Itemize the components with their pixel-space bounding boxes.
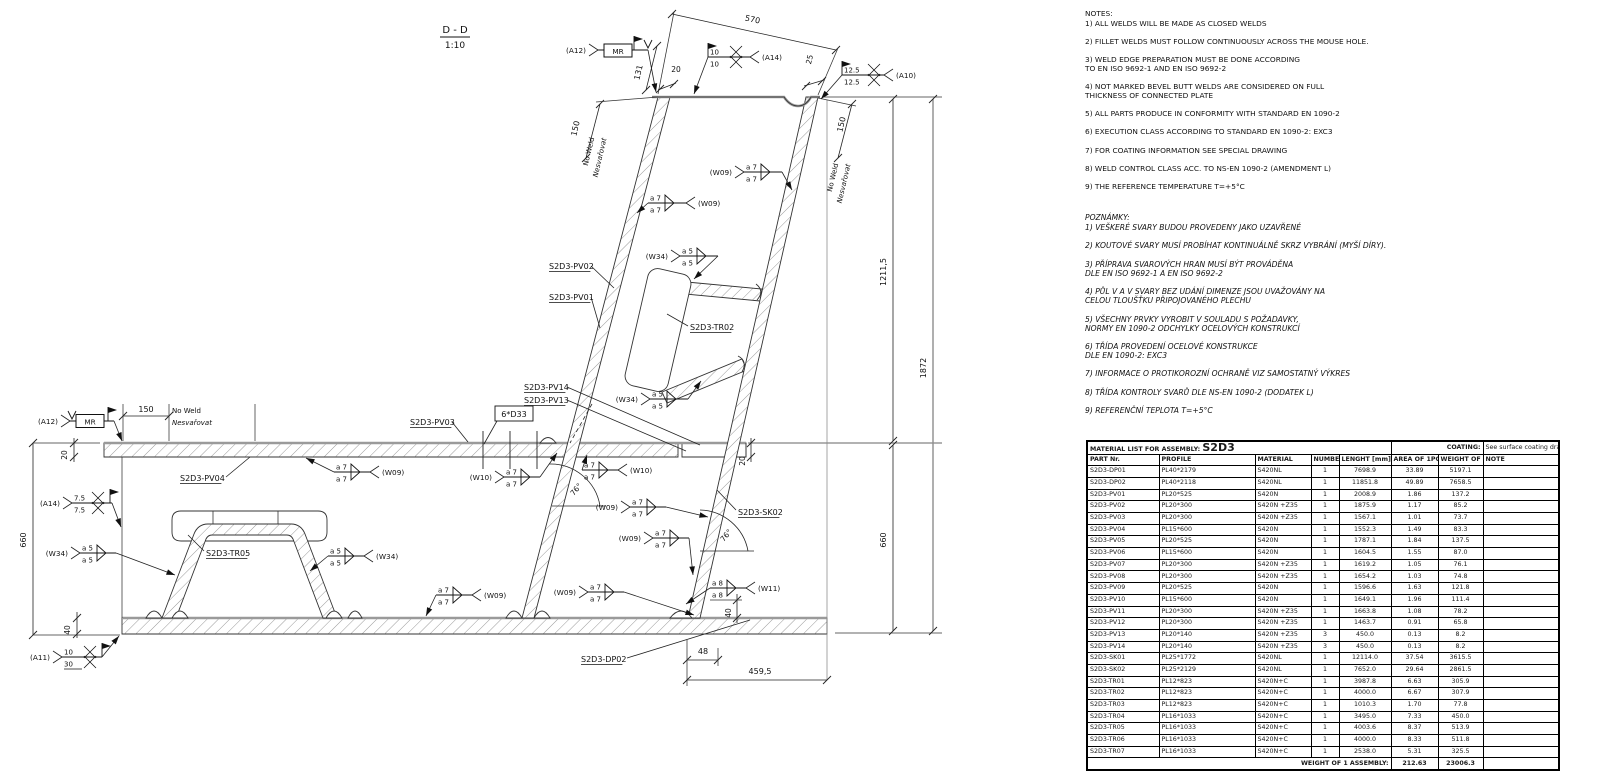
tr02-leg-lower-hatch [662, 359, 747, 403]
dim-tick [670, 80, 678, 88]
bottom-plate-dp02-hatch [122, 618, 827, 634]
weld-w34b-size-top: a 5 [652, 391, 663, 399]
weld-w09f-size-top: a 7 [438, 587, 449, 595]
cell-S2D3-PV12-6: 65.8 [1438, 618, 1483, 630]
cell-S2D3-DP01-5: 33.89 [1391, 466, 1438, 478]
dim-tick [848, 100, 856, 108]
no-weld-text-mid: No Weld [172, 407, 201, 415]
table-row-S2D3-PV04: S2D3-PV04PL15*600S420N11552.31.4983.3 [1087, 524, 1559, 536]
weld-a10-fork [884, 75, 893, 81]
weld-w34R-fork [364, 550, 373, 556]
cell-S2D3-PV07-5: 1.05 [1391, 559, 1438, 571]
cell-S2D3-SK01-2: S420NL [1255, 653, 1311, 665]
weld-w09b-size-bottom: a 7 [650, 206, 661, 214]
weld-mound-3 [146, 611, 162, 618]
cell-S2D3-PV08-6: 74.8 [1438, 571, 1483, 583]
cell-S2D3-PV07-4: 1619.2 [1339, 559, 1391, 571]
cell-S2D3-PV02-4: 1875.9 [1339, 501, 1391, 513]
mid-plate-hatch [104, 443, 678, 457]
weld-w34a-fillet-bottom-icon [697, 256, 706, 264]
table-row-S2D3-PV06: S2D3-PV06PL15*600S420N11604.51.5587.0 [1087, 548, 1559, 560]
table-row-S2D3-PV13: S2D3-PV13PL20*140S420N +Z353450.00.138.2 [1087, 629, 1559, 641]
weld-w34L-size-bottom: a 5 [82, 556, 93, 564]
cell-S2D3-PV10-4: 1649.1 [1339, 594, 1391, 606]
cell-S2D3-PV06-2: S420N [1255, 548, 1311, 560]
cell-S2D3-PV02-6: 85.2 [1438, 501, 1483, 513]
dim-d660l: 660 [19, 532, 28, 547]
weld-w09d-size-top: a 7 [632, 499, 643, 507]
weld-w10a-fillet-bottom-icon [521, 477, 530, 485]
cell-S2D3-PV02-5: 1.17 [1391, 501, 1438, 513]
cell-S2D3-PV07-6: 76.1 [1438, 559, 1483, 571]
dim-tick [818, 77, 826, 85]
weld-w11-fillet-bottom-icon [727, 588, 736, 596]
part-label-sk02: S2D3-SK02 [738, 508, 783, 517]
cell-S2D3-PV10-7 [1483, 594, 1559, 606]
note-cz-item-8: 8) TŘÍDA KONTROLY SVARŮ DLE NS-EN 1090-2… [1085, 389, 1565, 398]
note-cz-item-4: 4) PŮL V A V SVARY BEZ UDÁNÍ DIMENZE JSO… [1085, 288, 1565, 306]
weld-a12t-box-text: MR [612, 47, 623, 56]
weld-w34L-fork [71, 547, 80, 553]
weld-a11-fork [53, 657, 62, 663]
cell-S2D3-PV13-6: 8.2 [1438, 629, 1483, 641]
cell-S2D3-PV07-2: S420N +Z35 [1255, 559, 1311, 571]
cell-S2D3-TR07-3: 1 [1311, 746, 1339, 758]
weld-a14t-size-top: 10 [710, 49, 719, 57]
cell-S2D3-TR01-3: 1 [1311, 676, 1339, 688]
weld-a12L-v-icon [68, 411, 76, 419]
cell-S2D3-TR05-4: 4003.6 [1339, 723, 1391, 735]
table-row-S2D3-TR07: S2D3-TR07PL16*1033S420N+C12538.05.31325.… [1087, 746, 1559, 758]
cell-S2D3-PV08-2: S420N +Z35 [1255, 571, 1311, 583]
cell-S2D3-PV04-7 [1483, 524, 1559, 536]
weld-w10b-fillet-bottom-icon [599, 470, 608, 478]
cell-S2D3-DP01-3: 1 [1311, 466, 1339, 478]
weld-w09e-fork [644, 538, 653, 544]
weld-w11-size-top: a 8 [712, 580, 723, 588]
cell-S2D3-TR05-6: 513.9 [1438, 723, 1483, 735]
cell-S2D3-TR05-3: 1 [1311, 723, 1339, 735]
cell-S2D3-PV09-3: 1 [1311, 583, 1339, 595]
cell-S2D3-TR01-6: 305.9 [1438, 676, 1483, 688]
weld-w09a-fork [735, 172, 744, 178]
weld-w09g-size-bottom: a 7 [590, 595, 601, 603]
assembly-name: S2D3 [1202, 441, 1234, 454]
dim-tick [653, 42, 661, 50]
cell-S2D3-SK02-4: 7652.0 [1339, 664, 1391, 676]
line [596, 97, 658, 102]
weld-w34b-fork [641, 399, 650, 405]
weld-a12L-tag: (A12) [38, 417, 58, 426]
cell-S2D3-PV08-3: 1 [1311, 571, 1339, 583]
table-row-S2D3-PV14: S2D3-PV14PL20*140S420N +Z353450.00.138.2 [1087, 641, 1559, 653]
cell-S2D3-TR03-0: S2D3-TR03 [1087, 700, 1159, 712]
cell-S2D3-PV14-3: 3 [1311, 641, 1339, 653]
weld-w34L-fillet-bottom-icon [97, 553, 106, 561]
cell-S2D3-PV08-7 [1483, 571, 1559, 583]
weld-w11-size-bottom: a 8 [712, 591, 723, 599]
cell-S2D3-TR01-1: PL12*823 [1159, 676, 1255, 688]
cell-S2D3-SK02-1: PL25*2129 [1159, 664, 1255, 676]
note-en-heading: NOTES: [1085, 10, 1565, 19]
column-header-6: AREA OF 1PCS (m2) [1391, 454, 1438, 466]
cell-S2D3-SK02-6: 2861.5 [1438, 664, 1483, 676]
cell-S2D3-PV14-6: 8.2 [1438, 641, 1483, 653]
note-en-item-4: 4) NOT MARKED BEVEL BUTT WELDS ARE CONSI… [1085, 83, 1565, 100]
cell-S2D3-TR02-0: S2D3-TR02 [1087, 688, 1159, 700]
cell-S2D3-PV13-0: S2D3-PV13 [1087, 629, 1159, 641]
cell-S2D3-TR04-2: S420N+C [1255, 711, 1311, 723]
weld-w09e-arrowhead [689, 566, 695, 575]
cell-S2D3-PV11-1: PL20*300 [1159, 606, 1255, 618]
weld-w11-fork [746, 582, 755, 588]
cell-S2D3-TR06-6: 511.8 [1438, 735, 1483, 747]
cell-S2D3-PV13-2: S420N +Z35 [1255, 629, 1311, 641]
cell-S2D3-TR07-2: S420N+C [1255, 746, 1311, 758]
cell-S2D3-PV02-7 [1483, 501, 1559, 513]
note-en-item-6: 6) EXECUTION CLASS ACCORDING TO STANDARD… [1085, 128, 1565, 137]
table-row-S2D3-PV09: S2D3-PV09PL20*525S420N11596.61.63121.8 [1087, 583, 1559, 595]
column-header-5: LENGHT [mm] [1339, 454, 1391, 466]
cell-S2D3-PV10-2: S420N [1255, 594, 1311, 606]
footer-area-total: 212.63 [1391, 758, 1438, 770]
cell-S2D3-PV03-2: S420N +Z35 [1255, 513, 1311, 525]
cell-S2D3-PV04-3: 1 [1311, 524, 1339, 536]
cell-S2D3-PV04-6: 83.3 [1438, 524, 1483, 536]
weld-w09d-fork [621, 507, 630, 513]
cell-S2D3-PV11-7 [1483, 606, 1559, 618]
weld-a12t-tag: (A12) [566, 46, 586, 55]
cell-S2D3-TR02-7 [1483, 688, 1559, 700]
weld-w09f-size-bottom: a 7 [438, 598, 449, 606]
cell-S2D3-PV01-4: 2008.9 [1339, 489, 1391, 501]
note-en-item-5: 5) ALL PARTS PRODUCE IN CONFORMITY WITH … [1085, 110, 1565, 119]
cell-S2D3-PV13-1: PL20*140 [1159, 629, 1255, 641]
weld-w09a-fillet-top-icon [761, 164, 770, 172]
cell-S2D3-SK01-5: 37.54 [1391, 653, 1438, 665]
cell-S2D3-DP02-6: 7658.5 [1438, 477, 1483, 489]
part-label-tr05: S2D3-TR05 [206, 549, 250, 558]
cell-S2D3-PV03-3: 1 [1311, 513, 1339, 525]
weld-a11-tag: (A11) [30, 653, 50, 662]
cell-S2D3-TR03-4: 1010.3 [1339, 700, 1391, 712]
section-scale: 1:10 [445, 41, 465, 51]
weld-a12t-flag-icon [634, 36, 643, 42]
part-label-pv04: S2D3-PV04 [180, 474, 225, 483]
coating-label: COATING: [1391, 441, 1483, 454]
cell-S2D3-TR01-4: 3987.8 [1339, 676, 1391, 688]
cell-S2D3-PV06-1: PL15*600 [1159, 548, 1255, 560]
cell-S2D3-TR06-5: 8.33 [1391, 735, 1438, 747]
cell-S2D3-PV14-0: S2D3-PV14 [1087, 641, 1159, 653]
weld-w10b-fork [618, 470, 627, 476]
table-row-S2D3-DP02: S2D3-DP02PL40*2118S420NL111851.849.89765… [1087, 477, 1559, 489]
weld-w09b-fork [686, 197, 695, 203]
cell-S2D3-TR03-1: PL12*823 [1159, 700, 1255, 712]
cell-S2D3-PV06-0: S2D3-PV06 [1087, 548, 1159, 560]
table-row-S2D3-PV05: S2D3-PV05PL20*525S420N11787.11.84137.5 [1087, 536, 1559, 548]
weld-w34L-tag: (W34) [46, 549, 68, 558]
weld-w09b-size-top: a 7 [650, 195, 661, 203]
cell-S2D3-PV05-6: 137.5 [1438, 536, 1483, 548]
cell-S2D3-PV13-5: 0.13 [1391, 629, 1438, 641]
weld-a14L-arrowhead [115, 518, 121, 527]
weld-w34L-leader [116, 553, 175, 575]
cell-S2D3-TR04-0: S2D3-TR04 [1087, 711, 1159, 723]
note-en-item-1: 1) ALL WELDS WILL BE MADE AS CLOSED WELD… [1085, 20, 1565, 29]
weld-w34R-size-bottom: a 5 [330, 559, 341, 567]
weld-w34R-tag: (W34) [376, 552, 398, 561]
cell-S2D3-PV10-5: 1.96 [1391, 594, 1438, 606]
weld-w34b-tag: (W34) [616, 395, 638, 404]
cell-S2D3-TR07-5: 5.31 [1391, 746, 1438, 758]
cell-S2D3-PV05-7 [1483, 536, 1559, 548]
weld-w34R-fillet-top-icon [345, 548, 354, 556]
cell-S2D3-PV04-2: S420N [1255, 524, 1311, 536]
weld-w34L-size-top: a 5 [82, 545, 93, 553]
cell-S2D3-PV09-2: S420N [1255, 583, 1311, 595]
dim-d20r: 20 [738, 456, 747, 466]
cell-S2D3-PV14-7 [1483, 641, 1559, 653]
cell-S2D3-PV06-3: 1 [1311, 548, 1339, 560]
weld-w34b-size-bottom: a 5 [652, 402, 663, 410]
cell-S2D3-TR02-6: 307.9 [1438, 688, 1483, 700]
cell-S2D3-PV03-5: 1.01 [1391, 513, 1438, 525]
cell-S2D3-TR07-6: 325.5 [1438, 746, 1483, 758]
cell-S2D3-PV11-5: 1.08 [1391, 606, 1438, 618]
weld-a14t-fork [750, 57, 759, 63]
line [818, 98, 856, 106]
cell-S2D3-TR07-4: 2538.0 [1339, 746, 1391, 758]
cell-S2D3-PV02-1: PL20*300 [1159, 501, 1255, 513]
table-row-S2D3-TR05: S2D3-TR05PL16*1033S420N+C14003.68.37513.… [1087, 723, 1559, 735]
cell-S2D3-PV06-7 [1483, 548, 1559, 560]
cell-S2D3-DP01-7 [1483, 466, 1559, 478]
cell-S2D3-TR03-6: 77.8 [1438, 700, 1483, 712]
cell-S2D3-DP01-1: PL40*2179 [1159, 466, 1255, 478]
weld-a14L-tag: (A14) [40, 499, 60, 508]
section-title: D - D [442, 25, 468, 36]
cell-S2D3-PV08-1: PL20*300 [1159, 571, 1255, 583]
weld-w10a-fork [495, 471, 504, 477]
weld-a14t-tag: (A14) [762, 53, 782, 62]
table-row-S2D3-PV03: S2D3-PV03PL20*300S420N +Z3511567.11.0173… [1087, 513, 1559, 525]
cell-S2D3-TR04-6: 450.0 [1438, 711, 1483, 723]
cell-S2D3-PV14-4: 450.0 [1339, 641, 1391, 653]
weld-a10-size-bottom: 12.5 [844, 78, 860, 86]
weld-a12t-fork [589, 44, 598, 50]
cell-S2D3-TR04-1: PL16*1033 [1159, 711, 1255, 723]
cell-S2D3-PV02-0: S2D3-PV02 [1087, 501, 1159, 513]
dim-d20l: 20 [60, 450, 69, 460]
cell-S2D3-DP02-7 [1483, 477, 1559, 489]
holes-label-leader [484, 421, 497, 444]
cell-S2D3-TR04-3: 1 [1311, 711, 1339, 723]
weld-w09e-tag: (W09) [619, 534, 641, 543]
weld-w09d-tag: (W09) [596, 503, 618, 512]
cell-S2D3-PV10-6: 111.4 [1438, 594, 1483, 606]
cell-S2D3-PV03-7 [1483, 513, 1559, 525]
weld-w09c-fork [370, 472, 379, 478]
weld-a12L-fork [61, 421, 70, 427]
tr05-web-hatch [162, 524, 337, 618]
note-cz-item-7: 7) INFORMACE O PROTIKOROZNÍ OCHRANĚ VIZ … [1085, 370, 1565, 379]
cell-S2D3-PV04-4: 1552.3 [1339, 524, 1391, 536]
column-header-8: NOTE [1483, 454, 1559, 466]
cell-S2D3-SK02-3: 1 [1311, 664, 1339, 676]
cell-S2D3-PV05-5: 1.84 [1391, 536, 1438, 548]
dim-tick [834, 154, 842, 162]
cell-S2D3-DP02-2: S420NL [1255, 477, 1311, 489]
weld-w09c-arrowhead [306, 458, 315, 464]
cell-S2D3-PV12-2: S420N +Z35 [1255, 618, 1311, 630]
weld-w10a-fork [495, 477, 504, 483]
cell-S2D3-TR02-1: PL12*823 [1159, 688, 1255, 700]
cell-S2D3-PV05-4: 1787.1 [1339, 536, 1391, 548]
footer-label: WEIGHT OF 1 ASSEMBLY: [1087, 758, 1391, 770]
cell-S2D3-PV06-4: 1604.5 [1339, 548, 1391, 560]
cell-S2D3-TR05-5: 8.37 [1391, 723, 1438, 735]
cell-S2D3-SK01-4: 12114.0 [1339, 653, 1391, 665]
note-en-item-8: 8) WELD CONTROL CLASS ACC. TO NS-EN 1090… [1085, 165, 1565, 174]
cell-S2D3-PV05-3: 1 [1311, 536, 1339, 548]
cell-S2D3-TR02-3: 1 [1311, 688, 1339, 700]
cell-S2D3-PV02-2: S420N +Z35 [1255, 501, 1311, 513]
cell-S2D3-PV01-5: 1.86 [1391, 489, 1438, 501]
weld-a14L-flag-icon [110, 489, 119, 495]
weld-w09e-fork [644, 532, 653, 538]
weld-w34R-fork [364, 556, 373, 562]
cell-S2D3-PV10-0: S2D3-PV10 [1087, 594, 1159, 606]
cell-S2D3-PV12-4: 1463.7 [1339, 618, 1391, 630]
table-row-S2D3-TR04: S2D3-TR04PL16*1033S420N+C13495.07.33450.… [1087, 711, 1559, 723]
cell-S2D3-PV14-5: 0.13 [1391, 641, 1438, 653]
cell-S2D3-DP01-0: S2D3-DP01 [1087, 466, 1159, 478]
weld-w09g-tag: (W09) [554, 588, 576, 597]
line [658, 12, 674, 94]
cell-S2D3-TR06-7 [1483, 735, 1559, 747]
cell-S2D3-TR02-5: 6.67 [1391, 688, 1438, 700]
cell-S2D3-PV09-5: 1.63 [1391, 583, 1438, 595]
cell-S2D3-PV13-3: 3 [1311, 629, 1339, 641]
cell-S2D3-TR01-7 [1483, 676, 1559, 688]
weld-w09b-tag: (W09) [698, 199, 720, 208]
dim-d40r: 40 [724, 608, 733, 618]
weld-w09e-size-bottom: a 7 [655, 541, 666, 549]
weld-w34L-fork [71, 553, 80, 559]
weld-mound-1 [534, 611, 550, 618]
table-row-S2D3-SK02: S2D3-SK02PL25*2129S420NL17652.029.642861… [1087, 664, 1559, 676]
weld-w34L-fillet-top-icon [97, 545, 106, 553]
cell-S2D3-PV03-0: S2D3-PV03 [1087, 513, 1159, 525]
line [818, 48, 838, 95]
weld-w09f-fillet-bottom-icon [453, 595, 462, 603]
dim-d1211: 1211,5 [879, 258, 888, 286]
cell-S2D3-TR05-0: S2D3-TR05 [1087, 723, 1159, 735]
cell-S2D3-TR02-4: 4000.0 [1339, 688, 1391, 700]
cell-S2D3-TR05-2: S420N+C [1255, 723, 1311, 735]
cell-S2D3-SK02-2: S420NL [1255, 664, 1311, 676]
weld-w34a-fillet-top-icon [697, 248, 706, 256]
weld-w09d-fillet-top-icon [647, 499, 656, 507]
cell-S2D3-PV06-6: 87.0 [1438, 548, 1483, 560]
cell-S2D3-PV09-0: S2D3-PV09 [1087, 583, 1159, 595]
dim-tick [656, 85, 664, 93]
cell-S2D3-DP02-0: S2D3-DP02 [1087, 477, 1159, 489]
dim-d1872: 1872 [919, 358, 928, 378]
weld-a14t-arrowhead [694, 85, 700, 94]
dim-d459: 459,5 [749, 667, 772, 676]
weld-a12t-v-icon [644, 40, 652, 48]
weld-a14t-size-bottom: 10 [710, 60, 719, 68]
weld-w09f-fork [472, 589, 481, 595]
cell-S2D3-PV03-6: 73.7 [1438, 513, 1483, 525]
weld-w09b-fork [686, 203, 695, 209]
weld-w09g-size-top: a 7 [590, 584, 601, 592]
table-row-S2D3-PV01: S2D3-PV01PL20*525S420N12008.91.86137.2 [1087, 489, 1559, 501]
column-header-4: NUMBER [1311, 454, 1339, 466]
weld-a14L-fork [63, 497, 72, 503]
cell-S2D3-DP02-4: 11851.8 [1339, 477, 1391, 489]
weld-w10b-size-bottom: a 7 [584, 473, 595, 481]
cell-S2D3-PV05-0: S2D3-PV05 [1087, 536, 1159, 548]
weld-mound-6 [348, 611, 362, 618]
weld-w10a-fillet-top-icon [521, 469, 530, 477]
weld-w09d-size-bottom: a 7 [632, 510, 643, 518]
dim-tick [668, 10, 676, 18]
footer-note [1483, 758, 1559, 770]
cell-S2D3-DP02-5: 49.89 [1391, 477, 1438, 489]
part-label-dp02: S2D3-DP02 [581, 655, 626, 664]
cell-S2D3-PV01-3: 1 [1311, 489, 1339, 501]
weld-w09g-fork [579, 586, 588, 592]
cell-S2D3-TR06-4: 4000.0 [1339, 735, 1391, 747]
cell-S2D3-PV03-1: PL20*300 [1159, 513, 1255, 525]
table-row-S2D3-SK01: S2D3-SK01PL25*1772S420NL112114.037.54361… [1087, 653, 1559, 665]
weld-w09g-leader [624, 592, 694, 615]
table-title: MATERIAL LIST FOR ASSEMBLY: S2D3 [1087, 441, 1391, 454]
weld-w09e-fillet-bottom-icon [670, 538, 679, 546]
part-label-leader-pv03 [452, 422, 468, 442]
table-row-S2D3-PV08: S2D3-PV08PL20*300S420N +Z3511654.21.0374… [1087, 571, 1559, 583]
dim-d76b: 76° [718, 527, 734, 543]
material-list-table: MATERIAL LIST FOR ASSEMBLY: S2D3COATING:… [1086, 440, 1558, 771]
weld-w09c-tag: (W09) [382, 468, 404, 477]
weld-w09a-size-bottom: a 7 [746, 175, 757, 183]
cell-S2D3-PV04-5: 1.49 [1391, 524, 1438, 536]
weld-w10b-tag: (W10) [630, 466, 652, 475]
weld-w09c-fillet-bottom-icon [351, 472, 360, 480]
cell-S2D3-DP01-6: 5197.1 [1438, 466, 1483, 478]
cell-S2D3-SK02-7 [1483, 664, 1559, 676]
weld-a12t-fork [589, 50, 598, 56]
cell-S2D3-TR05-7 [1483, 723, 1559, 735]
table-row-S2D3-TR03: S2D3-TR03PL12*823S420N+C11010.31.7077.8 [1087, 700, 1559, 712]
weld-w09g-fillet-top-icon [605, 584, 614, 592]
weld-w09e-fillet-top-icon [670, 530, 679, 538]
part-label-pv02: S2D3-PV02 [549, 262, 594, 271]
cell-S2D3-PV12-1: PL20*300 [1159, 618, 1255, 630]
dim-d76a: 76° [568, 481, 584, 497]
weld-w09c-fork [370, 466, 379, 472]
part-label-leader-pv04 [226, 457, 250, 477]
cell-S2D3-TR04-5: 7.33 [1391, 711, 1438, 723]
cell-S2D3-SK01-0: S2D3-SK01 [1087, 653, 1159, 665]
table-row-S2D3-TR02: S2D3-TR02PL12*823S420N+C14000.06.67307.9 [1087, 688, 1559, 700]
table-row-S2D3-TR06: S2D3-TR06PL16*1033S420N+C14000.08.33511.… [1087, 735, 1559, 747]
weld-w09a-fillet-bottom-icon [761, 172, 770, 180]
note-cz-item-2: 2) KOUTOVÉ SVARY MUSÍ PROBÍHAT KONTINUÁL… [1085, 242, 1565, 251]
